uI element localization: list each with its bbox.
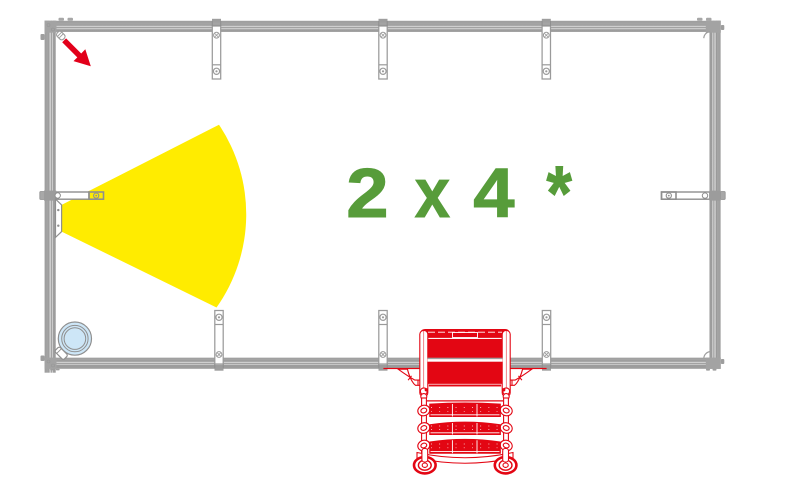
svg-text:*: * — [547, 150, 573, 236]
svg-text:2: 2 — [346, 155, 388, 233]
svg-text:x: x — [415, 155, 450, 233]
svg-text:4: 4 — [473, 155, 514, 233]
